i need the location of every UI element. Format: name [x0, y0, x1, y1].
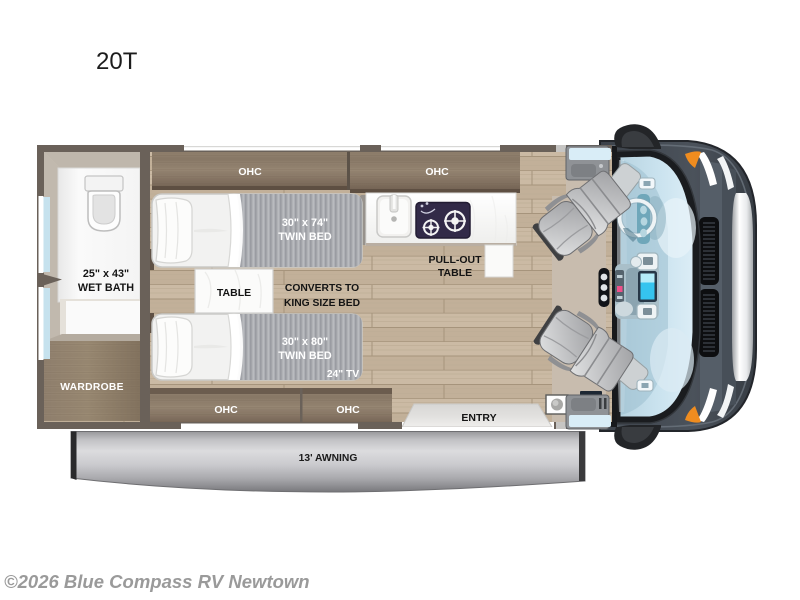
svg-text:OHC: OHC — [425, 166, 449, 178]
svg-text:13' AWNING: 13' AWNING — [299, 453, 358, 464]
svg-text:KING SIZE BED: KING SIZE BED — [284, 298, 360, 309]
svg-text:24" TV: 24" TV — [327, 369, 359, 380]
svg-text:ENTRY: ENTRY — [461, 412, 496, 424]
svg-text:TABLE: TABLE — [217, 287, 251, 299]
svg-text:WET BATH: WET BATH — [78, 282, 134, 294]
svg-text:30" x 80": 30" x 80" — [282, 336, 328, 348]
svg-text:OHC: OHC — [238, 166, 262, 178]
svg-text:20T: 20T — [96, 48, 138, 75]
svg-text:WARDROBE: WARDROBE — [60, 382, 124, 393]
svg-text:CONVERTS TO: CONVERTS TO — [285, 283, 359, 294]
svg-text:OHC: OHC — [336, 404, 360, 416]
svg-text:©2026 Blue Compass RV Newtown: ©2026 Blue Compass RV Newtown — [4, 571, 310, 592]
svg-text:TABLE: TABLE — [438, 267, 472, 279]
svg-text:30" x 74": 30" x 74" — [282, 217, 328, 229]
svg-text:TWIN BED: TWIN BED — [278, 350, 332, 362]
svg-text:TWIN BED: TWIN BED — [278, 231, 332, 243]
svg-text:25" x 43": 25" x 43" — [83, 268, 129, 280]
svg-text:OHC: OHC — [214, 404, 238, 416]
svg-text:PULL-OUT: PULL-OUT — [428, 254, 482, 266]
